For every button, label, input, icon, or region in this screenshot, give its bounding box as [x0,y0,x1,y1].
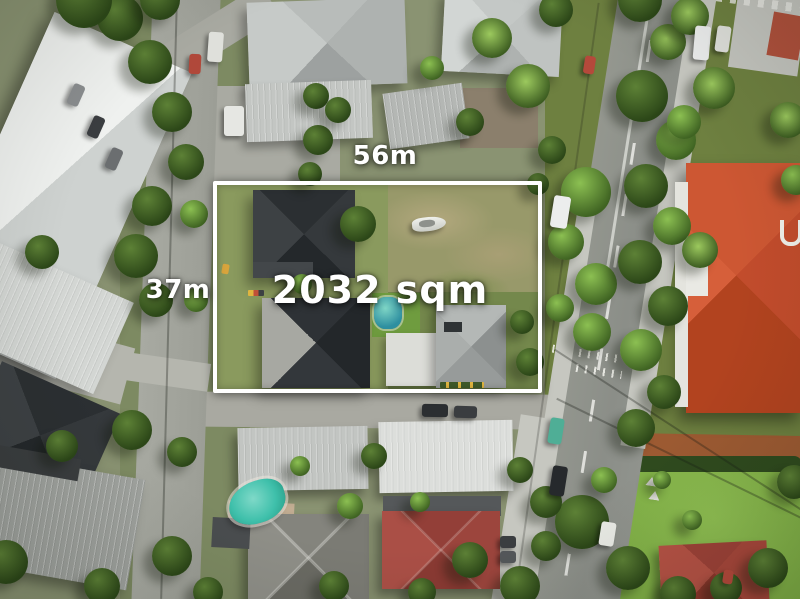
tree-canopy [46,430,78,462]
tree-canopy [500,566,540,599]
tree-canopy [420,56,444,80]
frontage-dimension-label: 56m [330,141,440,171]
roof-white-long-south [378,420,513,493]
tree-canopy [591,467,617,493]
tree-canopy [616,70,668,122]
tree-canopy [193,577,223,599]
car [500,536,516,548]
tree-canopy [573,313,611,351]
tree-canopy [620,329,662,371]
tree-canopy [682,510,702,530]
roof-gray-hip-north [247,0,408,89]
palm-tree [682,232,718,268]
palm-tree [693,67,735,109]
tree-canopy [606,546,650,590]
tree-canopy [408,578,436,599]
area-label: 2032 sqm [215,268,545,312]
car [207,32,224,63]
tree-canopy [748,548,788,588]
tree-canopy [167,437,197,467]
tree-canopy [410,492,430,512]
roof-gray-shingle-house [248,514,369,599]
car [422,404,448,417]
tree-canopy [132,186,172,226]
tree-canopy [618,240,662,284]
tree-canopy [538,136,566,164]
palm-tree [770,102,800,138]
tree-canopy [325,97,351,123]
tree-canopy [624,164,668,208]
tree-canopy [575,263,617,305]
tree-canopy [647,375,681,409]
tree-canopy [531,531,561,561]
tree-canopy [337,493,363,519]
tree-canopy [168,144,204,180]
tree-canopy [617,409,655,447]
tree-canopy [112,410,152,450]
tree-canopy [25,235,59,269]
roof-vent-white [780,220,800,246]
tree-canopy [152,92,192,132]
tree-canopy [548,224,584,260]
tree-canopy [452,542,488,578]
palm-tree [472,18,512,58]
tree-canopy [546,294,574,322]
tree-canopy [128,40,172,84]
aerial-photo: 56m 37m 2032 sqm [0,0,800,599]
car [693,25,712,60]
tree-canopy [667,105,701,139]
tree-canopy [84,568,120,599]
tree-canopy [180,200,208,228]
tree-canopy [361,443,387,469]
tree-canopy [507,457,533,483]
car [454,406,477,419]
depth-dimension-label: 37m [138,275,218,305]
car [188,54,201,75]
tree-canopy [319,571,349,599]
tree-canopy [648,286,688,326]
palm-tree [506,64,550,108]
tree-canopy [152,536,192,576]
car [224,106,244,136]
tree-canopy [114,234,158,278]
tree-canopy [303,125,333,155]
tree-canopy [290,456,310,476]
car [500,551,516,563]
tree-canopy [653,471,671,489]
tree-canopy [456,108,484,136]
